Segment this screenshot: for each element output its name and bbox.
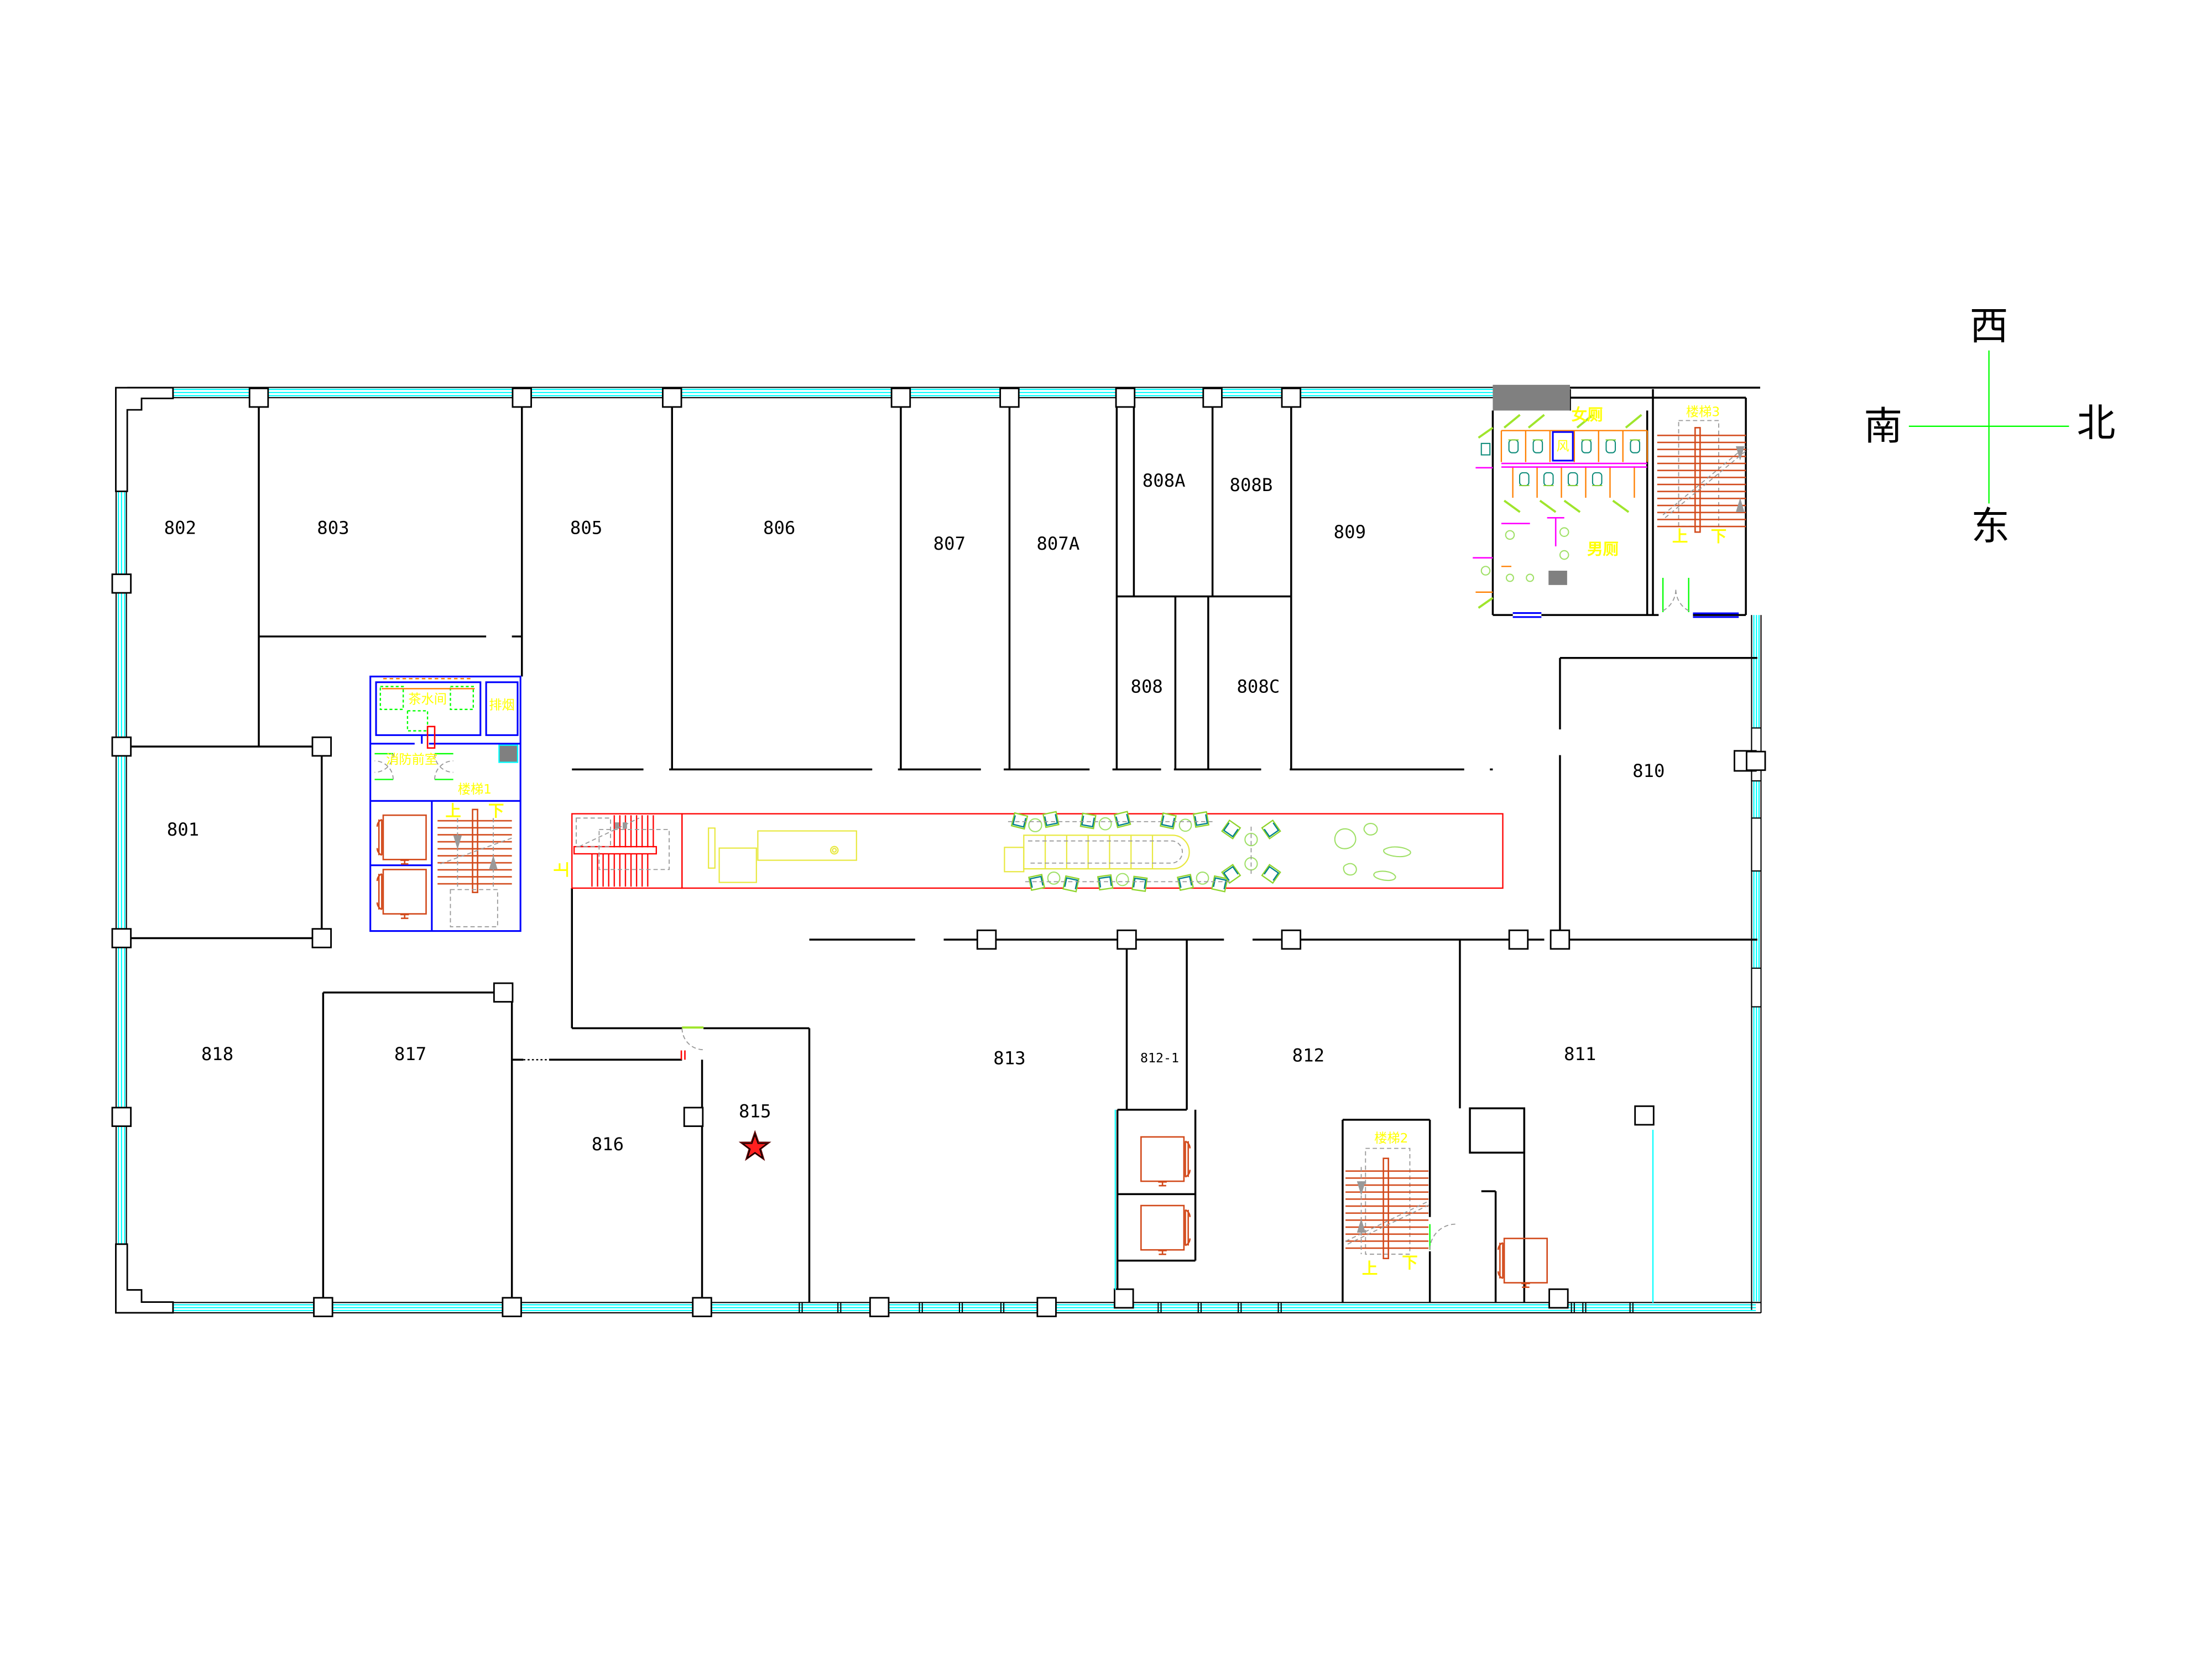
stair3-down-label: 下 xyxy=(1711,527,1726,545)
male-wc-label: 男厕 xyxy=(1587,540,1619,559)
room-label-807A: 807A xyxy=(1036,533,1079,554)
stair1-down-label: 下 xyxy=(488,802,504,820)
fire-hydrant xyxy=(427,727,435,748)
room-label-808: 808 xyxy=(1131,676,1163,697)
toilet-block: 女厕 男厕 风 xyxy=(1473,406,1647,617)
duct-label: 风 xyxy=(1556,439,1569,454)
escalator-upper-treads xyxy=(611,815,655,847)
stair2-down-label: 下 xyxy=(1402,1254,1417,1272)
room-label-807: 807 xyxy=(933,533,966,554)
escalator-up-label: 上 xyxy=(553,862,571,877)
reception-desk xyxy=(708,828,857,882)
room-label-816: 816 xyxy=(592,1134,624,1155)
room-label-811: 811 xyxy=(1564,1044,1596,1065)
side-tables xyxy=(1029,818,1257,886)
room-label-812: 812 xyxy=(1292,1045,1324,1066)
stair3-treads xyxy=(1657,434,1746,528)
room-label-809: 809 xyxy=(1334,521,1366,542)
elevator-core-2 xyxy=(377,869,426,918)
room-label-817: 817 xyxy=(394,1044,426,1065)
809-fixtures xyxy=(1473,427,1493,608)
fire-lobby-label: 消防前室 xyxy=(386,752,437,767)
location-star xyxy=(740,1132,769,1160)
room-label-815: 815 xyxy=(739,1100,771,1121)
smoke-exhaust-label: 排烟 xyxy=(489,698,515,713)
room-label-801: 801 xyxy=(167,819,199,840)
room-label-803: 803 xyxy=(317,517,349,538)
elevator-core-1 xyxy=(377,815,426,864)
stair1-label: 楼梯1 xyxy=(458,782,492,797)
room-label-802: 802 xyxy=(164,517,196,538)
floor-plan-drawing: 茶水间 排烟 消防前室 楼梯1 上 下 上 xyxy=(0,0,2212,1659)
stair3: 楼梯3 上 下 xyxy=(1657,404,1748,617)
stair3-label: 楼梯3 xyxy=(1686,404,1720,419)
tea-room-label: 茶水间 xyxy=(408,692,447,707)
exterior-curtain-wall xyxy=(116,388,1761,1313)
room-label-813: 813 xyxy=(993,1048,1025,1069)
corner-column-bottom-left xyxy=(116,1244,173,1313)
stair2: 楼梯2 上 下 xyxy=(1345,1131,1455,1277)
elevator-south-2 xyxy=(1141,1206,1190,1254)
room-label-818: 818 xyxy=(201,1044,233,1065)
elevator-south-3 xyxy=(1498,1238,1547,1287)
corridor-zone: 上 xyxy=(553,811,1503,891)
stair2-treads xyxy=(1345,1167,1428,1254)
interior-walls xyxy=(117,388,1760,1303)
compass-south: 南 xyxy=(1864,404,1902,448)
elevator-south-1 xyxy=(1141,1137,1190,1186)
compass-north: 北 xyxy=(2077,401,2116,446)
shaft-block-core xyxy=(499,745,518,762)
escalator-lower-treads xyxy=(591,854,652,886)
female-wc-label: 女厕 xyxy=(1572,406,1603,424)
compass: 西 南 北 东 xyxy=(1864,304,2115,549)
corridor-chairs xyxy=(1011,811,1280,891)
shaft-block-toilet-top xyxy=(1493,385,1570,411)
room-label-806: 806 xyxy=(763,517,795,538)
compass-west: 西 xyxy=(1970,304,2008,348)
room-label-812-1: 812-1 xyxy=(1140,1051,1179,1066)
room-label-810: 810 xyxy=(1632,760,1665,781)
stair1-up-label: 上 xyxy=(445,802,461,820)
room-label-808C: 808C xyxy=(1237,676,1280,697)
stair1-treads xyxy=(437,817,512,888)
shaft-block-toilet-bottom xyxy=(1548,571,1567,585)
room-label-805: 805 xyxy=(570,517,602,538)
stair2-up-label: 上 xyxy=(1362,1259,1378,1277)
service-core: 茶水间 排烟 消防前室 楼梯1 上 下 xyxy=(371,676,520,931)
room-label-808B: 808B xyxy=(1230,474,1273,495)
room-label-808A: 808A xyxy=(1142,470,1186,491)
stair2-label: 楼梯2 xyxy=(1374,1131,1408,1146)
room-labels: 802 803 805 806 807 807A 808A 808B 809 8… xyxy=(164,470,1665,1155)
plants xyxy=(1335,823,1411,880)
corner-column-top-left xyxy=(116,388,173,491)
structural-columns xyxy=(112,388,1765,1316)
doors xyxy=(523,1027,703,1060)
stair3-up-label: 上 xyxy=(1672,527,1688,545)
compass-east: 东 xyxy=(1971,504,2010,549)
floor-plan-page: 茶水间 排烟 消防前室 楼梯1 上 下 上 xyxy=(0,0,2212,1659)
